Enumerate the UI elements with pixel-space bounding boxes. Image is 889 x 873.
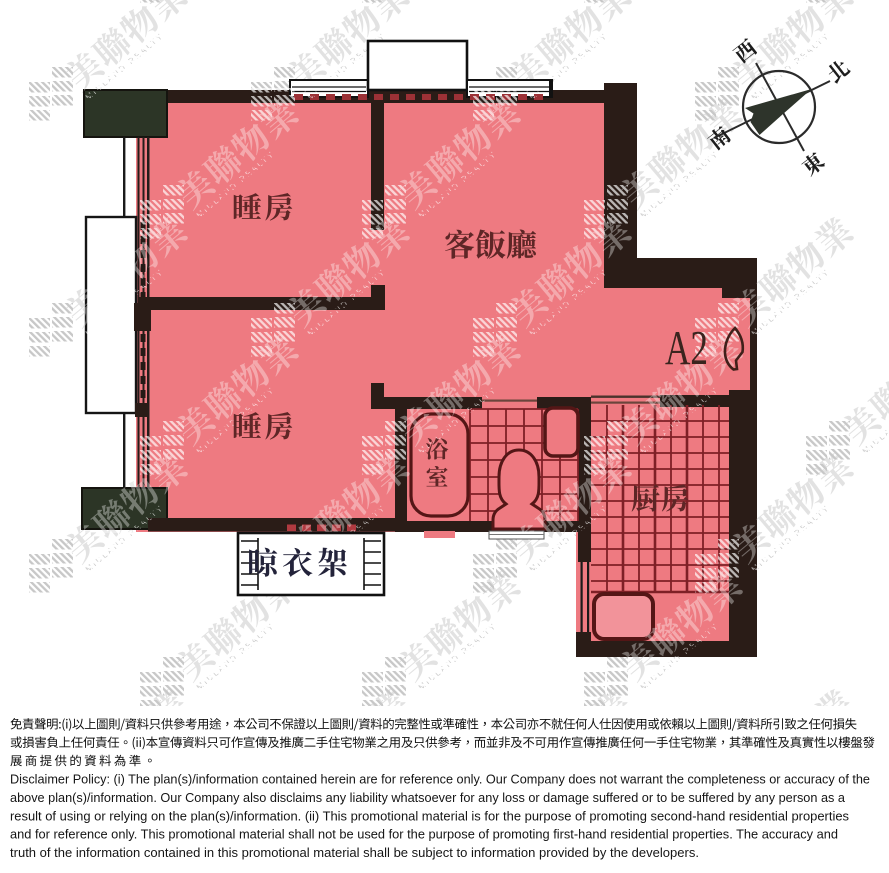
svg-text:and for reference only. This p: and for reference only. This promotional… <box>10 828 838 842</box>
svg-text:truth of the information conta: truth of the information contained in th… <box>10 846 699 860</box>
svg-text:Disclaimer Policy: (i) The pla: Disclaimer Policy: (i) The plan(s)/infor… <box>10 773 870 787</box>
svg-text:A2: A2 <box>665 320 708 375</box>
svg-text:above plan(s)/information. Our: above plan(s)/information. Our Company a… <box>10 791 845 805</box>
svg-text:result of using or relying on: result of using or relying on the plan(s… <box>10 809 849 823</box>
